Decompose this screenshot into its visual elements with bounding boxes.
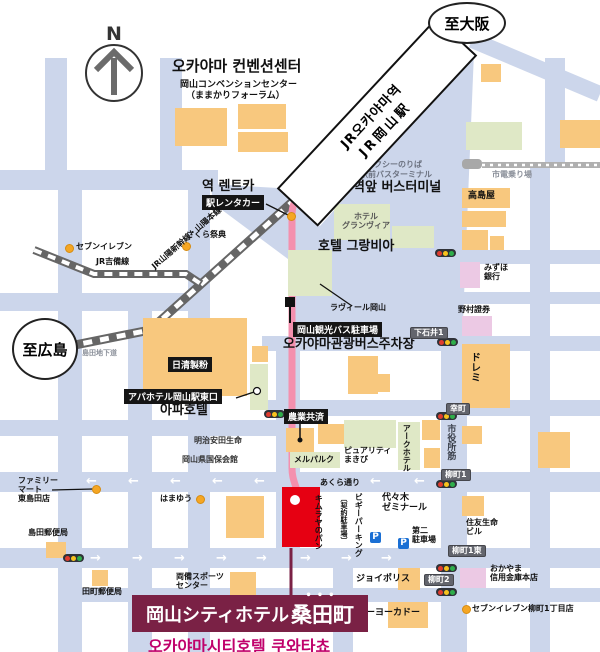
okayama-access-map: ← ← ← ← ← ← ← → → → → → → → → <box>0 0 600 652</box>
ryobi-sports-label: 両備スポーツ センター <box>176 572 224 590</box>
hotel-name-korean: 오카야마시티호텔 쿠와타쵸 <box>148 633 330 652</box>
traffic-light <box>63 554 84 562</box>
hotel-name-stylized: ••• 桑田町 <box>291 599 354 629</box>
apa-hotel-korean: 아파호텔 <box>160 404 208 419</box>
shiyakusho-suji-label: 市役所筋 <box>445 424 455 460</box>
to-osaka-label: 至大阪 <box>444 13 489 34</box>
traffic-light <box>437 338 458 346</box>
purity-makibi-label: ピュアリティ まきび <box>344 446 391 464</box>
rentacar-japanese: 駅レンタカー <box>202 195 264 210</box>
to-osaka-bubble: 至大阪 <box>428 2 506 44</box>
hamayu-label: はまゆう <box>160 494 192 503</box>
kibi-line-label: JR吉備線 <box>96 257 129 266</box>
sumitomo-label: 住友生命 ビル <box>466 518 498 536</box>
bus-parking-japanese: 岡山観光バス駐車場 <box>293 322 382 337</box>
mizuho-bank-label: みずほ 銀行 <box>484 263 508 281</box>
seven-eleven2-label: セブンイレブン柳町1丁目店 <box>472 604 574 613</box>
traffic-light <box>436 588 457 596</box>
shimada-post-label: 島田郵便局 <box>28 528 68 537</box>
kimuraya-label: キムラヤのパン <box>314 494 323 564</box>
tram-stop-label: 市電乗り場 <box>492 170 532 179</box>
hotel-granvia-japanese: ホテル グランヴィア <box>342 212 390 230</box>
road-sign-saiwaicho: 幸町 <box>446 403 470 415</box>
shinkin-label: おかやま 信用金庫本店 <box>490 564 538 582</box>
takashimaya-label: 高島屋 <box>468 191 495 201</box>
familymart-dot <box>92 485 101 494</box>
familymart-label: ファミリー マート 東島田店 <box>18 476 58 504</box>
doremi-label: ドレミ <box>468 352 480 382</box>
traffic-light <box>436 564 457 572</box>
akura-dori-label: あくら通り <box>320 478 360 487</box>
road-sign-yanagimachi1-east: 柳町1東 <box>448 545 486 557</box>
nisshin-label: 日清製粉 <box>168 357 212 372</box>
biggy-parking-label2: 〔契約駐車場〕 <box>340 495 348 557</box>
yoyogi-seminar-label: 代々木 ゼミナール <box>382 493 427 514</box>
kokuho-kaikan-label: 岡山県国保会館 <box>182 455 238 464</box>
svg-text:N: N <box>106 23 122 45</box>
convention-center-korean: 오카야마 컨벤션센터 <box>172 58 301 75</box>
rentacar-dot <box>287 212 296 221</box>
melparque-label: メルパルク <box>294 455 334 464</box>
hamayu-dot <box>196 495 205 504</box>
biggy-parking-label: ビギーパーキング <box>354 493 363 561</box>
seven-eleven-dot <box>65 244 74 253</box>
tamachi-post-label: 田町郵便局 <box>82 587 122 596</box>
hotel-granvia-korean: 호텔 그랑비아 <box>318 240 394 255</box>
hotel-banner: 岡山シティホテル ••• 桑田町 <box>132 595 368 632</box>
north-arrow: N <box>74 18 154 108</box>
traffic-light <box>264 410 285 418</box>
traffic-light <box>435 249 456 257</box>
bus-terminal-japanese: 駅前バスターミナル <box>360 170 432 179</box>
nogyo-kyosai-label: 農業共済 <box>284 409 328 424</box>
seven-eleven2-dot <box>462 605 471 614</box>
nomura-label: 野村證券 <box>458 305 490 314</box>
shimada-underpass-label: 島田地下道 <box>82 349 117 357</box>
bus-parking-korean: 오카야마관광버스주차장 <box>283 338 415 353</box>
road-sign-shimoishii1: 下石井1 <box>410 327 448 339</box>
hotel-entrance-dot <box>290 495 300 505</box>
road-sign-yanagimachi2: 柳町2 <box>424 574 454 586</box>
apa-hotel-japanese: アパホテル岡山駅東口 <box>124 389 222 404</box>
hotel-name-japanese: 岡山シティホテル <box>146 601 289 627</box>
ravir-okayama-label: ラヴィール岡山 <box>330 303 386 312</box>
meiji-yasuda-label: 明治安田生命 <box>194 436 242 445</box>
parking-icon: P <box>370 532 381 543</box>
to-hiroshima-bubble: 至広島 <box>12 318 78 380</box>
bus-terminal-korean: 역앞 버스터미널 <box>353 181 441 196</box>
seven-eleven-label: セブンイレブン <box>76 242 132 251</box>
rentacar-korean: 역 렌트카 <box>202 180 254 195</box>
convention-center-japanese2: （ままかりフォーラム） <box>186 91 285 101</box>
convention-center-japanese: 岡山コンベンションセンター <box>180 80 297 90</box>
ark-hotel-label: アークホテル <box>402 424 411 472</box>
joypolis-label: ジョイポリス <box>356 574 410 584</box>
road-sign-yanagimachi1: 柳町1 <box>441 469 471 481</box>
parking-icon: P <box>398 538 409 549</box>
traffic-light <box>436 480 457 488</box>
daini-parking-label: 第二 駐車場 <box>412 526 436 544</box>
banner-dots: ••• <box>305 590 339 601</box>
to-hiroshima-label: 至広島 <box>22 339 67 360</box>
